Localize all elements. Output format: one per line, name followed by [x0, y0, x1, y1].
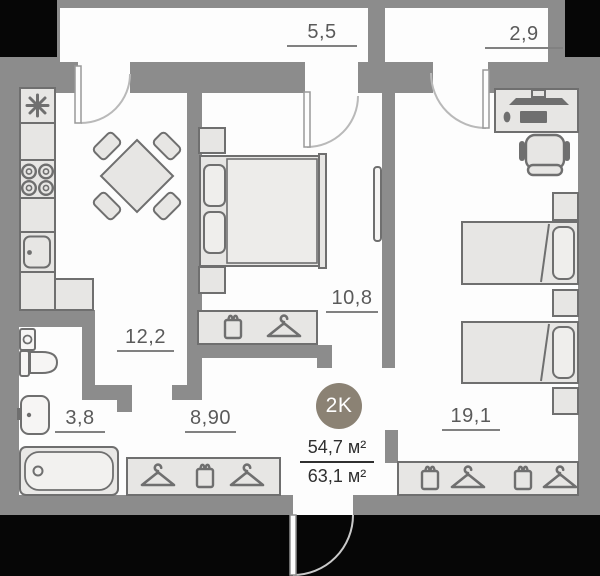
- mouse-icon: [504, 112, 511, 123]
- mattress: [227, 159, 317, 263]
- bed-footboard: [319, 154, 326, 268]
- keyboard-icon: [520, 111, 547, 123]
- nightstand: [553, 193, 578, 220]
- bathroom-area: 3,8: [65, 407, 94, 429]
- monitor-icon: [509, 98, 569, 105]
- nightstand: [553, 388, 578, 414]
- snowflake-icon: [27, 95, 48, 116]
- nightstand: [553, 290, 578, 316]
- pillow: [553, 227, 574, 279]
- opening-entrance: [293, 495, 353, 515]
- apartment-type-badge: 2K: [316, 383, 362, 429]
- hallway-area: 8,90: [190, 407, 231, 429]
- apartment-area-summary: 54,7 м² 63,1 м²: [294, 437, 380, 486]
- bedroom-1-area: 10,8: [332, 287, 373, 309]
- kitchen-cabinet: [20, 272, 55, 310]
- opening-balcony-kitchen: [78, 8, 130, 93]
- pillow: [204, 165, 225, 206]
- balcony-1-area: 5,5: [307, 21, 336, 43]
- room-area-label-balcony-1: 5,5: [287, 22, 357, 47]
- hallway-wardrobe: [127, 458, 280, 495]
- room-area-label-balcony-2: 2,9: [485, 24, 563, 49]
- floor-plan: 5,5 2,9 12,2 10,8 3,8 8,90 19,1 2K 54,7 …: [0, 0, 600, 576]
- entrance-door: [290, 515, 296, 575]
- opening-balcony-bedroom-2: [433, 8, 488, 93]
- tv-icon: [374, 167, 381, 241]
- washbasin-icon: [21, 396, 49, 434]
- room-area-label-bedroom-2: 19,1: [442, 406, 500, 431]
- room-area-label-bathroom: 3,8: [55, 408, 105, 433]
- balcony-door-bedroom-1: [304, 92, 310, 147]
- kitchen-cabinet: [20, 198, 55, 232]
- desk: [495, 89, 578, 132]
- room-area-label-kitchen: 12,2: [117, 327, 174, 352]
- kitchen-cabinet: [20, 123, 55, 160]
- washing-machine-icon: [20, 329, 35, 350]
- wardrobe: [198, 311, 317, 344]
- balcony-door-bedroom-2: [483, 70, 489, 128]
- nightstand: [199, 128, 225, 153]
- balcony-2-area: 2,9: [509, 23, 538, 45]
- dining-table: [92, 131, 182, 221]
- balcony-door-kitchen: [75, 66, 81, 123]
- room-area-label-bedroom-1: 10,8: [326, 288, 378, 313]
- bedroom-2-area: 19,1: [451, 405, 492, 427]
- pillow: [553, 327, 574, 378]
- total-area-value: 63,1 м²: [294, 463, 380, 487]
- kitchen-cabinet-corner: [55, 279, 93, 310]
- living-area-value: 54,7 м²: [300, 437, 374, 463]
- room-area-label-hallway: 8,90: [185, 408, 236, 433]
- kitchen-area: 12,2: [125, 326, 166, 348]
- pillow: [204, 212, 225, 253]
- toilet-icon: [20, 351, 29, 376]
- floor-plan-drawing: [0, 0, 600, 576]
- bathtub-drain: [34, 467, 43, 476]
- nightstand: [199, 267, 225, 293]
